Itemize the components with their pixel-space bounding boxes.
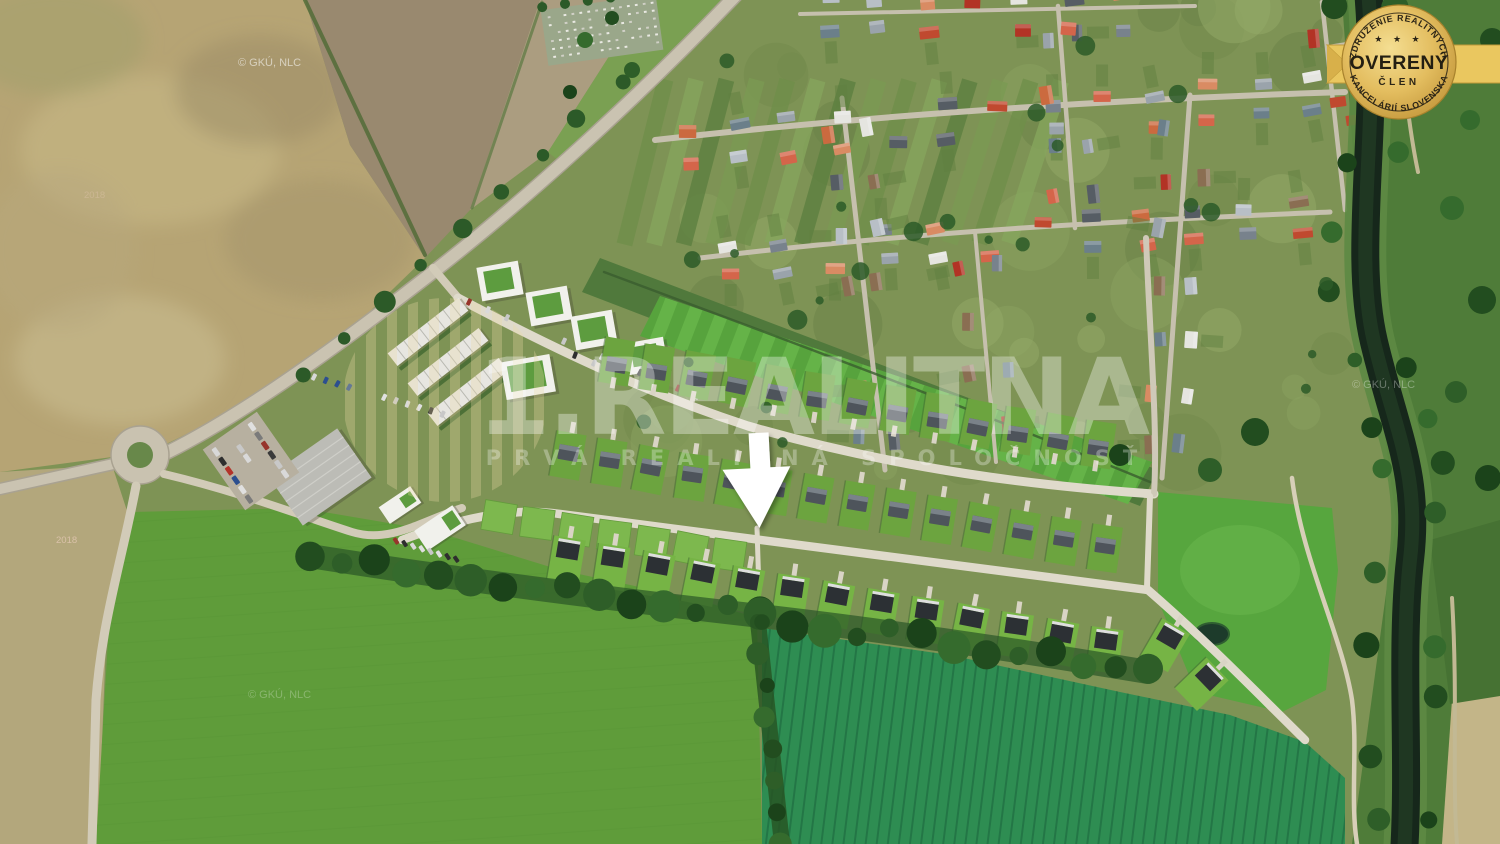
tree-icon (1460, 110, 1480, 130)
watermark-stripe (450, 296, 460, 504)
grave-marker (558, 31, 561, 33)
garden (1151, 138, 1163, 160)
plot-lawn (481, 500, 518, 535)
grave-marker (579, 12, 582, 14)
village-house (1060, 22, 1076, 36)
grave-marker (571, 13, 574, 15)
village-house (1239, 227, 1256, 240)
tree-icon (1075, 36, 1095, 56)
grave-marker (607, 40, 610, 42)
grave-marker (595, 9, 598, 11)
apartment-block (476, 260, 527, 304)
village-house (822, 0, 840, 3)
grave-marker (631, 37, 634, 39)
tree-icon (1373, 459, 1392, 478)
tree-icon (1308, 350, 1316, 358)
credit-text: © GKÚ, NLC (1352, 378, 1415, 391)
tree-icon (414, 259, 426, 271)
roof-highlight (1050, 33, 1054, 49)
roof-highlight (1167, 174, 1171, 190)
grave-marker (629, 21, 632, 23)
house-roof (866, 0, 882, 8)
roof-highlight (1093, 91, 1110, 95)
tree-icon (424, 561, 453, 590)
tree-icon (730, 249, 739, 258)
field-patch (1180, 525, 1300, 615)
tree-icon (338, 332, 351, 345)
house-roof (915, 602, 939, 621)
grave-marker (552, 48, 555, 50)
grave-marker (644, 11, 647, 13)
tree-icon (760, 678, 775, 693)
tree-icon (880, 619, 899, 638)
village-house (964, 0, 981, 9)
tree-icon (1468, 286, 1496, 314)
credit-year: 2018 (56, 535, 77, 546)
roof-highlight (679, 125, 696, 129)
grave-marker (601, 49, 604, 51)
village-house (1307, 29, 1320, 49)
credit-text: © GKÚ, NLC (238, 56, 301, 69)
grave-marker (627, 5, 630, 7)
garden (835, 85, 848, 108)
roof-highlight (1206, 169, 1211, 187)
house-roof (964, 0, 980, 9)
watermark-stripe (429, 296, 439, 504)
village-house (1082, 209, 1101, 223)
tree-icon (848, 628, 866, 646)
grave-marker (643, 3, 646, 5)
village-house (1157, 119, 1170, 136)
grave-marker (621, 22, 624, 24)
tree-icon (296, 367, 311, 382)
tree-icon (583, 579, 615, 611)
garden (1189, 248, 1203, 271)
ground-patch (1287, 396, 1321, 430)
grave-marker (587, 10, 590, 12)
tree-icon (1009, 647, 1027, 665)
garden (1201, 335, 1224, 349)
roof-highlight (722, 269, 739, 273)
aerial-photo-stage: © GKÚ, NLC © GKÚ, NLC © GKÚ, NLC 2018 20… (0, 0, 1500, 844)
grave-marker (655, 33, 658, 35)
tree-icon (1338, 153, 1357, 172)
tree-icon (1301, 384, 1311, 394)
aerial-photo: © GKÚ, NLC © GKÚ, NLC © GKÚ, NLC 2018 20… (0, 0, 1500, 844)
tree-icon (1387, 141, 1408, 162)
village-house (1015, 24, 1031, 37)
grave-marker (600, 41, 603, 43)
tree-icon (525, 578, 545, 598)
tree-icon (984, 236, 993, 245)
grave-marker (646, 26, 649, 28)
tree-icon (493, 184, 509, 200)
grave-marker (569, 53, 572, 55)
tree-icon (489, 573, 518, 602)
tree-icon (1202, 203, 1221, 222)
tree-icon (1367, 808, 1390, 831)
tree-icon (763, 739, 782, 758)
grave-marker (566, 30, 569, 32)
tree-icon (765, 772, 783, 790)
tree-icon (684, 251, 701, 268)
tree-icon (776, 610, 808, 642)
grave-marker (551, 40, 554, 42)
grave-marker (567, 38, 570, 40)
tree-icon (1036, 636, 1066, 666)
village-house (1154, 332, 1166, 347)
grave-marker (652, 9, 655, 11)
grave-marker (611, 7, 614, 9)
tree-icon (1105, 656, 1127, 678)
ground-patch (1310, 332, 1353, 375)
garden (939, 71, 952, 94)
tree-icon (836, 202, 846, 212)
tree-icon (1361, 417, 1382, 438)
grave-marker (638, 28, 641, 30)
tree-icon (1133, 654, 1163, 684)
grave-marker (606, 32, 609, 34)
grave-marker (568, 46, 571, 48)
grave-marker (561, 55, 564, 57)
grave-marker (624, 46, 627, 48)
garden (1298, 242, 1312, 265)
tree-icon (1475, 465, 1500, 491)
tree-icon (1321, 221, 1342, 242)
tree-icon (972, 640, 1001, 669)
house-roof (780, 579, 804, 598)
grave-marker (577, 52, 580, 54)
ground-patch (777, 52, 806, 81)
village-house (1116, 25, 1130, 38)
badge-subtitle: ČLEN (1378, 75, 1419, 88)
grave-marker (654, 25, 657, 27)
tree-icon (1440, 196, 1464, 220)
grave-marker (647, 34, 650, 36)
grave-marker (576, 44, 579, 46)
garden (825, 41, 838, 64)
tree-icon (754, 614, 770, 630)
grave-marker (548, 16, 551, 18)
garden (1202, 52, 1214, 74)
village-house (1086, 184, 1100, 204)
roof-highlight (1161, 276, 1165, 295)
tree-icon (605, 11, 619, 25)
garden (885, 268, 898, 291)
roof-highlight (999, 255, 1002, 271)
tree-icon (1241, 418, 1269, 446)
tree-icon (1070, 653, 1096, 679)
grave-marker (628, 13, 631, 15)
grave-marker (622, 30, 625, 32)
roof-highlight (1239, 227, 1256, 232)
village-house (1010, 0, 1027, 5)
tree-icon (1319, 277, 1333, 291)
tree-icon (392, 559, 420, 587)
garden (1087, 26, 1109, 38)
roof-highlight (889, 136, 907, 140)
grave-marker (617, 47, 620, 49)
ground-patch (1268, 32, 1333, 97)
tree-icon (907, 618, 937, 648)
house-roof (1094, 632, 1118, 651)
house-roof (1004, 617, 1028, 636)
village-house (821, 126, 836, 145)
tree-icon (617, 590, 647, 620)
tree-icon (746, 642, 769, 665)
field-patch (175, 35, 345, 145)
grave-marker (588, 18, 591, 20)
garden (1238, 178, 1250, 200)
tree-icon (537, 149, 549, 161)
tree-icon (374, 291, 396, 313)
badge-stars-icon: ★ ★ ★ (1374, 34, 1423, 44)
garden (1214, 171, 1236, 184)
tree-icon (816, 296, 824, 304)
tree-icon (1424, 685, 1448, 709)
village-house (1184, 277, 1197, 295)
tree-icon (940, 214, 956, 230)
tree-icon (720, 53, 735, 68)
grave-marker (656, 41, 659, 43)
garden (1256, 52, 1269, 75)
tree-icon (808, 614, 842, 648)
watermark-stripe (387, 296, 397, 504)
house-roof (1010, 0, 1027, 5)
grave-marker (651, 2, 654, 4)
watermark-stripe (408, 296, 418, 504)
tree-icon (577, 32, 593, 48)
watermark-brand: 1.REALITNA (477, 336, 1150, 459)
village-house (987, 101, 1007, 112)
grave-marker (635, 4, 638, 6)
dev-lane (1147, 496, 1150, 588)
tree-icon (453, 219, 472, 238)
tree-icon (1424, 502, 1446, 524)
tree-icon (904, 222, 924, 242)
village-house (962, 313, 974, 331)
grave-marker (549, 24, 552, 26)
tree-icon (1359, 745, 1383, 769)
grave-marker (589, 26, 592, 28)
tree-icon (332, 553, 353, 574)
tree-icon (554, 572, 580, 598)
grave-marker (636, 12, 639, 14)
credit-text: © GKÚ, NLC (248, 688, 311, 701)
tree-icon (1364, 562, 1386, 584)
tree-icon (1348, 353, 1363, 368)
watermark-tagline: PRVÁ REALITNÁ SPOLOČNOSŤ (486, 445, 1151, 470)
tree-icon (359, 544, 390, 575)
village-house (1035, 217, 1052, 228)
roof-highlight (1236, 204, 1252, 208)
roof-highlight (1116, 25, 1130, 29)
tree-icon (718, 595, 738, 615)
village-house (1198, 114, 1214, 126)
tree-icon (1169, 85, 1187, 103)
roof-highlight (683, 157, 698, 162)
tree-icon (567, 109, 585, 127)
tree-icon (1198, 458, 1222, 482)
credit-year: 2018 (84, 190, 105, 201)
village-house (830, 174, 844, 191)
village-house (679, 125, 696, 138)
tree-icon (1423, 635, 1446, 658)
grave-marker (609, 48, 612, 50)
tree-icon (754, 707, 775, 728)
tree-icon (454, 564, 487, 597)
village-house (920, 0, 935, 11)
grave-marker (639, 35, 642, 37)
grave-marker (563, 14, 566, 16)
village-house (809, 228, 847, 244)
roof-highlight (1198, 114, 1214, 118)
grave-marker (615, 39, 618, 41)
grave-marker (603, 8, 606, 10)
tree-icon (1431, 451, 1455, 475)
grave-marker (598, 33, 601, 35)
tree-icon (1353, 632, 1379, 658)
roundabout-island (127, 442, 153, 468)
village-house (1171, 433, 1185, 453)
tree-icon (1184, 198, 1199, 213)
empty-plot (520, 506, 556, 540)
tree-icon (1016, 237, 1030, 251)
tree-icon (1052, 140, 1064, 152)
garden (924, 42, 938, 65)
tree-icon (563, 85, 577, 99)
grave-marker (574, 29, 577, 31)
house-roof (601, 549, 625, 568)
tree-icon (1027, 104, 1045, 122)
tree-icon (647, 590, 679, 622)
garden (875, 198, 888, 221)
tree-icon (937, 631, 970, 664)
roof-highlight (1198, 79, 1217, 83)
tree-icon (787, 310, 807, 330)
badge-title: OVERENÝ (1350, 50, 1449, 74)
village-house (869, 20, 886, 34)
village-house (683, 157, 699, 170)
garden (1134, 177, 1156, 190)
garden (1087, 257, 1099, 279)
plot-lawn (520, 506, 556, 540)
house-roof (822, 0, 839, 3)
roof-highlight (826, 263, 845, 267)
tree-icon (1445, 381, 1467, 403)
village-house (889, 136, 907, 148)
grave-marker (559, 39, 562, 41)
roof-highlight (1084, 241, 1101, 245)
grave-marker (553, 56, 556, 58)
grave-marker (581, 27, 584, 29)
village-house (992, 255, 1002, 271)
tree-icon (687, 604, 705, 622)
garden (809, 230, 831, 242)
tree-icon (1086, 313, 1096, 323)
garden (1256, 123, 1269, 145)
garden (1096, 64, 1108, 86)
grave-marker (605, 24, 608, 26)
tree-icon (1396, 357, 1417, 378)
empty-plot (481, 500, 518, 535)
garden (725, 284, 737, 306)
roof-highlight (1035, 217, 1052, 221)
grave-marker (619, 6, 622, 8)
apartment-block (525, 285, 576, 329)
tree-icon (1420, 811, 1437, 828)
grave-marker (565, 22, 568, 24)
village-house (1154, 276, 1166, 295)
tree-icon (295, 542, 325, 572)
grave-marker (653, 17, 656, 19)
roof-highlight (843, 228, 847, 244)
tree-icon (1418, 409, 1437, 428)
roof-highlight (1254, 107, 1270, 111)
grave-marker (560, 47, 563, 49)
garden (1016, 35, 1039, 48)
roof-highlight (970, 313, 974, 331)
tree-icon (624, 62, 640, 78)
roof-highlight (1015, 24, 1031, 28)
tree-icon (768, 803, 786, 821)
grave-marker (572, 21, 575, 23)
tree-icon (851, 262, 869, 280)
roof-highlight (1049, 123, 1064, 127)
